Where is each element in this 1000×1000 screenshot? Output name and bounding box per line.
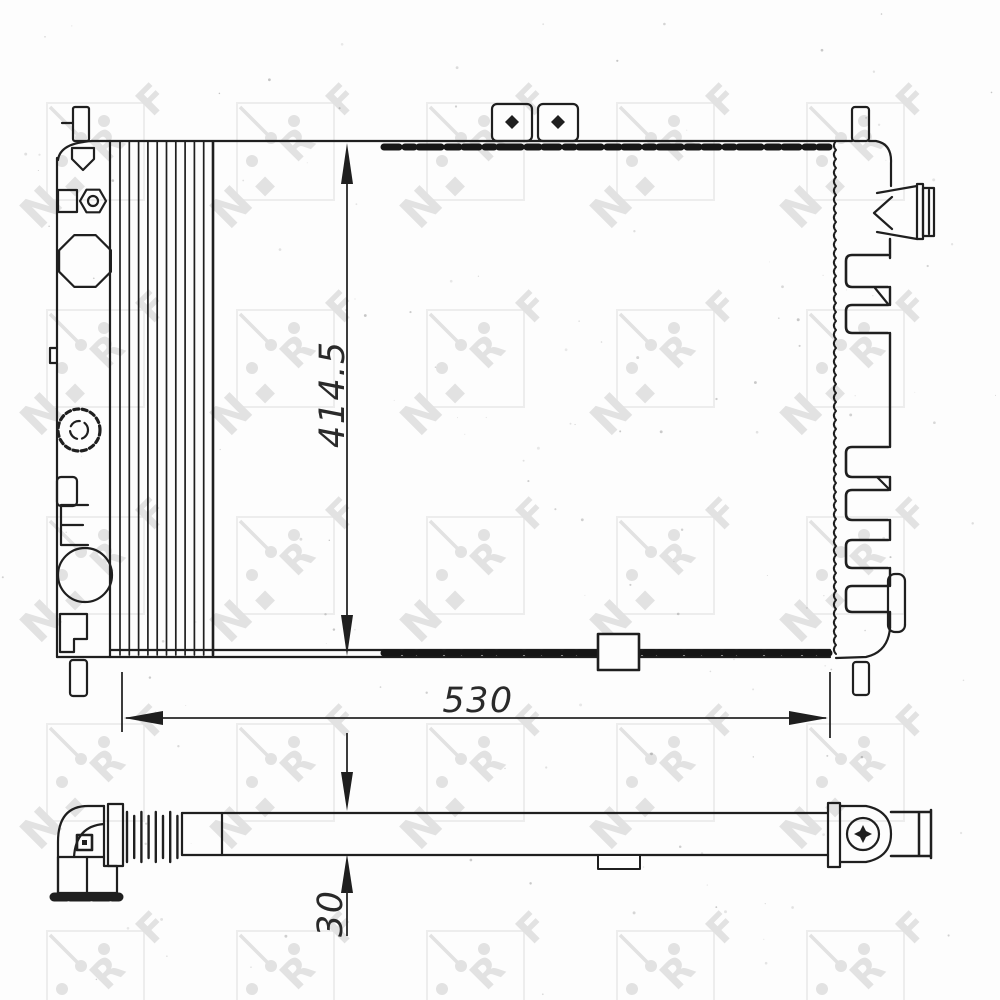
speckle — [846, 289, 847, 290]
watermark-letter-n: N — [391, 384, 453, 446]
filler-arrow — [72, 148, 94, 170]
speckle — [765, 903, 766, 904]
speckle — [435, 366, 436, 367]
watermark-diamond — [445, 591, 465, 611]
speckle — [824, 665, 826, 667]
speckle — [470, 859, 473, 862]
speckle — [948, 934, 950, 936]
speckle — [769, 261, 770, 262]
speckle — [650, 752, 653, 755]
speckle — [756, 431, 759, 434]
tank-clip-tab — [846, 586, 888, 612]
watermark-dot — [56, 776, 68, 788]
watermark-letter-n: N — [391, 798, 453, 860]
speckle — [145, 823, 147, 825]
speckle — [545, 766, 547, 768]
watermark-dot — [246, 569, 258, 581]
radiator-technical-drawing: NRFNRFNRFNRFNRFNRFNRFNRFNRFNRFNRFNRFNRFN… — [0, 0, 1000, 1000]
speckle — [329, 540, 330, 541]
watermark-letters: NRF — [581, 485, 749, 653]
watermark-letter-r: R — [651, 739, 703, 791]
watermark-letter-n: N — [11, 798, 73, 860]
speckle — [149, 676, 151, 678]
speckle — [963, 680, 965, 682]
watermark-letter-r: R — [81, 325, 133, 377]
watermark-letter-r: R — [81, 946, 133, 998]
watermark-letters: NRF — [771, 899, 939, 1000]
watermark-diamond — [65, 384, 85, 404]
speckle — [570, 423, 572, 425]
speckle — [864, 630, 866, 632]
watermark-letters: NRF — [11, 899, 179, 1000]
watermark-dot — [816, 983, 828, 995]
speckle — [504, 768, 505, 769]
speckle — [96, 979, 98, 981]
watermark-letter-f: F — [887, 75, 936, 124]
speckle — [112, 179, 115, 182]
watermark-letter-f: F — [317, 75, 366, 124]
speckle — [763, 939, 764, 940]
speckle — [872, 295, 873, 296]
nrf-watermark: NRF — [201, 71, 369, 239]
speckle — [951, 243, 953, 245]
watermark-letters: NRF — [771, 278, 939, 446]
watermark-pin-icon — [50, 314, 77, 341]
watermark-letter-n: N — [581, 177, 643, 239]
speckle — [219, 93, 221, 95]
watermark-letter-f: F — [507, 903, 556, 952]
watermark-letters: NRF — [391, 899, 559, 1000]
watermark-letter-n: N — [391, 177, 453, 239]
speckle — [93, 277, 95, 279]
watermark-dot — [436, 776, 448, 788]
watermark-diamond — [255, 798, 275, 818]
watermark-letter-n: N — [391, 591, 453, 653]
watermark-letters: NRF — [581, 899, 749, 1000]
speckle — [584, 595, 585, 596]
watermark-letter-f: F — [317, 489, 366, 538]
speckle — [681, 529, 683, 531]
cap-toothed-outer — [58, 409, 100, 451]
watermark-diamond — [635, 384, 655, 404]
speckle — [185, 705, 186, 706]
watermark-letter-n: N — [11, 591, 73, 653]
watermark-letter-r: R — [461, 946, 513, 998]
watermark-letters: NRF — [391, 71, 559, 239]
watermark-letter-f: F — [507, 282, 556, 331]
speckle — [932, 178, 935, 181]
watermark-letter-f: F — [127, 75, 176, 124]
speckle — [529, 882, 531, 884]
speckle — [279, 248, 282, 251]
nrf-watermark: NRF — [771, 899, 939, 1000]
speckle — [889, 556, 891, 558]
nrf-watermark: NRF — [581, 71, 749, 239]
watermark-dot — [246, 776, 258, 788]
inlet-elbow — [54, 806, 119, 897]
watermark-pin-icon — [430, 314, 457, 341]
watermark-letter-f: F — [127, 903, 176, 952]
speckle — [933, 421, 936, 424]
speckle — [715, 906, 717, 908]
watermark-diamond — [445, 798, 465, 818]
speckle — [160, 918, 163, 921]
speckle — [823, 595, 824, 596]
nrf-watermark: NRF — [11, 278, 179, 446]
watermark-letter-f: F — [697, 696, 746, 745]
speckle — [220, 449, 221, 450]
speckle — [162, 640, 165, 643]
nrf-watermark: NRF — [581, 899, 749, 1000]
speckle — [380, 686, 382, 688]
watermark-letters: NRF — [391, 485, 559, 653]
speckle — [81, 456, 82, 457]
watermark-diamond — [445, 384, 465, 404]
speckle — [38, 170, 39, 171]
speckle — [324, 613, 326, 615]
speckle — [995, 395, 996, 396]
watermark-letter-n: N — [771, 177, 833, 239]
speckle — [663, 23, 666, 26]
speckle — [242, 180, 244, 182]
watermark-diamond — [255, 591, 275, 611]
speckle — [830, 669, 832, 671]
watermark-pin-icon — [430, 935, 457, 962]
watermark-letter-r: R — [651, 946, 703, 998]
speckle — [797, 318, 800, 321]
speckle — [855, 395, 856, 396]
watermark-letter-f: F — [697, 75, 746, 124]
speckle — [144, 843, 146, 845]
watermark-letter-f: F — [507, 696, 556, 745]
speckle — [927, 265, 929, 267]
elbow-inner-arc — [74, 824, 104, 857]
clip-e — [61, 505, 88, 545]
speckle — [724, 910, 727, 913]
watermark-pin-icon — [240, 521, 267, 548]
speckle — [284, 935, 287, 938]
speckle — [878, 124, 880, 126]
watermark-letter-n: N — [201, 798, 263, 860]
speckle — [457, 417, 458, 418]
watermark-pin-icon — [50, 728, 77, 755]
speckle — [753, 756, 754, 757]
watermark-pin-icon — [430, 728, 457, 755]
speckle — [579, 703, 582, 706]
watermark-letter-n: N — [201, 591, 263, 653]
speckle — [865, 117, 867, 119]
speckle — [48, 226, 49, 227]
speckle — [581, 518, 584, 521]
speckle — [486, 417, 487, 418]
watermark-dot — [816, 155, 828, 167]
watermark-letter-f: F — [697, 489, 746, 538]
watermark-letter-r: R — [841, 739, 893, 791]
nrf-watermark: NRF — [581, 485, 749, 653]
watermark-pin-icon — [430, 521, 457, 548]
speckle — [677, 613, 680, 616]
watermark-pin-icon — [430, 107, 457, 134]
watermark-pin-icon — [620, 521, 647, 548]
bottom-right-pin — [853, 662, 869, 695]
speckle — [791, 906, 794, 909]
speckle — [765, 962, 768, 965]
speckle — [822, 833, 825, 836]
watermark-letter-r: R — [271, 532, 323, 584]
nrf-watermark: NRF — [11, 485, 179, 653]
speckle — [660, 430, 663, 433]
speckle — [799, 345, 801, 347]
width-dim-label: 530 — [442, 681, 513, 721]
fitting-star — [854, 825, 872, 843]
speckle — [849, 413, 852, 416]
speckle — [44, 36, 46, 38]
watermark-letter-r: R — [651, 325, 703, 377]
watermark-letter-f: F — [317, 282, 366, 331]
speckle — [364, 314, 367, 317]
watermark-pin-icon — [810, 935, 837, 962]
speckle — [754, 381, 757, 384]
speckle — [643, 866, 645, 868]
watermark-pin-icon — [620, 107, 647, 134]
nrf-watermark: NRF — [771, 278, 939, 446]
core-fins — [120, 142, 213, 655]
watermark-dot — [626, 776, 638, 788]
speckle — [708, 508, 709, 509]
speckle — [542, 993, 544, 995]
speckle — [633, 911, 636, 914]
tank-clip-tab — [846, 490, 888, 520]
watermark-letter-f: F — [317, 696, 366, 745]
speckle — [821, 49, 824, 52]
watermark-dot — [816, 362, 828, 374]
speckle — [601, 341, 603, 343]
speckle — [38, 154, 40, 156]
watermark-letters: NRF — [581, 71, 749, 239]
speckle — [307, 162, 308, 163]
watermark-letter-n: N — [771, 591, 833, 653]
watermark-dot — [246, 983, 258, 995]
speckle — [629, 584, 631, 586]
watermark-letter-n: N — [581, 798, 643, 860]
tank-clip-tab — [846, 447, 888, 477]
speckle — [2, 576, 4, 578]
watermark-dot — [436, 569, 448, 581]
speckle — [578, 320, 579, 321]
speckle — [885, 160, 886, 161]
watermark-letter-r: R — [271, 739, 323, 791]
watermark-letters: NRF — [771, 71, 939, 239]
clip-d — [57, 477, 77, 506]
outlet-fitting — [828, 803, 931, 867]
speckle — [177, 745, 179, 747]
speckle — [166, 955, 167, 956]
watermark-pin-icon — [240, 935, 267, 962]
speckle — [873, 71, 875, 73]
bottom-left-pin — [70, 660, 87, 696]
speckle — [464, 434, 465, 435]
thickness-arrow-down — [341, 772, 353, 811]
speckle — [565, 348, 568, 351]
speckle — [409, 311, 411, 313]
speckle — [823, 275, 824, 276]
nrf-watermark: NRF — [391, 71, 559, 239]
technical-drawing-page: NRFNRFNRFNRFNRFNRFNRFNRFNRFNRFNRFNRFNRFN… — [0, 0, 1000, 1000]
speckle — [537, 447, 540, 450]
tank-right-bottom-taper — [836, 628, 890, 658]
watermark-dot — [56, 983, 68, 995]
watermark-dot — [246, 155, 258, 167]
width-arrow-right — [789, 711, 828, 725]
watermark-letter-f: F — [887, 489, 936, 538]
watermark-pin-icon — [240, 107, 267, 134]
watermark-letter-n: N — [771, 798, 833, 860]
watermark-letter-n: N — [201, 177, 263, 239]
nrf-watermark: NRF — [391, 485, 559, 653]
nrf-watermark: NRF — [771, 71, 939, 239]
bellows-ribs — [127, 812, 177, 862]
watermark-dot — [816, 776, 828, 788]
watermark-letters: NRF — [201, 71, 369, 239]
watermark-letters: NRF — [391, 278, 559, 446]
watermark-dot — [626, 983, 638, 995]
watermark-dot — [436, 983, 448, 995]
speckle — [71, 25, 72, 26]
speckle — [356, 203, 358, 205]
watermark-diamond — [635, 591, 655, 611]
speckle — [752, 688, 754, 690]
watermark-diamond — [635, 177, 655, 197]
watermark-pin-icon — [240, 728, 267, 755]
speckle — [268, 78, 271, 81]
watermark-pin-icon — [810, 314, 837, 341]
speckle — [450, 280, 453, 283]
speckle — [806, 607, 808, 609]
bottom-mount-tab — [598, 634, 639, 670]
nrf-watermark: NRF — [391, 899, 559, 1000]
height-dim-label: 414.5 — [313, 340, 353, 448]
watermark-pin-icon — [240, 314, 267, 341]
speckle — [299, 538, 302, 541]
speckle — [195, 621, 196, 622]
speckle — [733, 659, 735, 661]
watermark-letters: NRF — [11, 278, 179, 446]
watermark-diamond — [65, 177, 85, 197]
watermark-dot — [436, 362, 448, 374]
speckle — [326, 643, 327, 644]
right-tank — [834, 107, 934, 695]
speckle — [354, 629, 356, 631]
watermark-dot — [816, 569, 828, 581]
watermark-dot — [626, 569, 638, 581]
speckle — [250, 967, 251, 968]
nrf-watermark: NRF — [391, 278, 559, 446]
watermark-letter-f: F — [697, 282, 746, 331]
watermark-letter-r: R — [271, 118, 323, 170]
watermark-letter-f: F — [887, 282, 936, 331]
speckle — [354, 298, 355, 299]
speckle — [24, 153, 27, 156]
watermark-dot — [626, 362, 638, 374]
outlet-pipe-profile — [891, 810, 931, 858]
watermark-letters: NRF — [581, 278, 749, 446]
nrf-watermark: NRF — [11, 899, 179, 1000]
speckle — [826, 755, 828, 757]
watermark-pin-icon — [620, 314, 647, 341]
watermark-pin-icon — [50, 935, 77, 962]
speckle — [127, 927, 130, 930]
speckle — [456, 66, 459, 69]
watermark-letter-f: F — [127, 489, 176, 538]
filler-octagon — [59, 235, 111, 287]
speckle — [554, 508, 556, 510]
speckle — [616, 60, 618, 62]
left-tank — [50, 107, 112, 696]
watermark-dot — [436, 155, 448, 167]
speckle — [333, 628, 335, 630]
tab-link-lower — [877, 477, 889, 489]
watermark-diamond — [445, 177, 465, 197]
inlet-flange — [108, 804, 123, 866]
speckle — [636, 356, 639, 359]
speckle — [710, 671, 712, 673]
speckle — [767, 575, 768, 576]
thickness-dim-label: 30 — [311, 889, 351, 937]
watermark-letter-n: N — [581, 384, 643, 446]
thickness-arrow-up — [341, 854, 353, 893]
watermark-letter-f: F — [887, 696, 936, 745]
nrf-watermark: NRF — [581, 278, 749, 446]
watermark-letter-n: N — [201, 384, 263, 446]
watermark-pin-icon — [620, 935, 647, 962]
dimension-thickness: 30 — [311, 733, 353, 937]
speckle — [426, 692, 428, 694]
speckle — [478, 276, 479, 277]
speckle — [394, 400, 395, 401]
watermark-pin-icon — [810, 728, 837, 755]
speckle — [542, 23, 544, 25]
speckle — [881, 13, 883, 15]
watermark-letter-n: N — [771, 384, 833, 446]
under-tab — [598, 855, 640, 869]
watermark-letter-f: F — [507, 489, 556, 538]
speckle — [715, 398, 717, 400]
watermark-layer: NRFNRFNRFNRFNRFNRFNRFNRFNRFNRFNRFNRFNRFN… — [11, 71, 939, 1000]
speckle — [914, 392, 915, 393]
watermark-diamond — [255, 177, 275, 197]
watermark-letter-r: R — [461, 739, 513, 791]
pipe-chevron — [874, 197, 892, 229]
cap-toothed-inner — [70, 421, 88, 439]
height-arrow-up — [341, 143, 353, 184]
tab-link-upper — [875, 288, 888, 304]
watermark-pin-icon — [810, 521, 837, 548]
speckle — [191, 843, 192, 844]
watermark-diamond — [635, 798, 655, 818]
watermark-diamond — [255, 384, 275, 404]
watermark-letter-f: F — [697, 903, 746, 952]
speckle — [574, 424, 575, 425]
watermark-letter-r: R — [651, 532, 703, 584]
watermark-letters: NRF — [11, 485, 179, 653]
watermark-letter-r: R — [841, 946, 893, 998]
speckle — [707, 884, 708, 885]
speckle — [778, 317, 780, 319]
speckle — [341, 43, 344, 46]
speckle — [679, 846, 682, 849]
speckle — [527, 480, 529, 482]
speckle — [673, 561, 674, 562]
